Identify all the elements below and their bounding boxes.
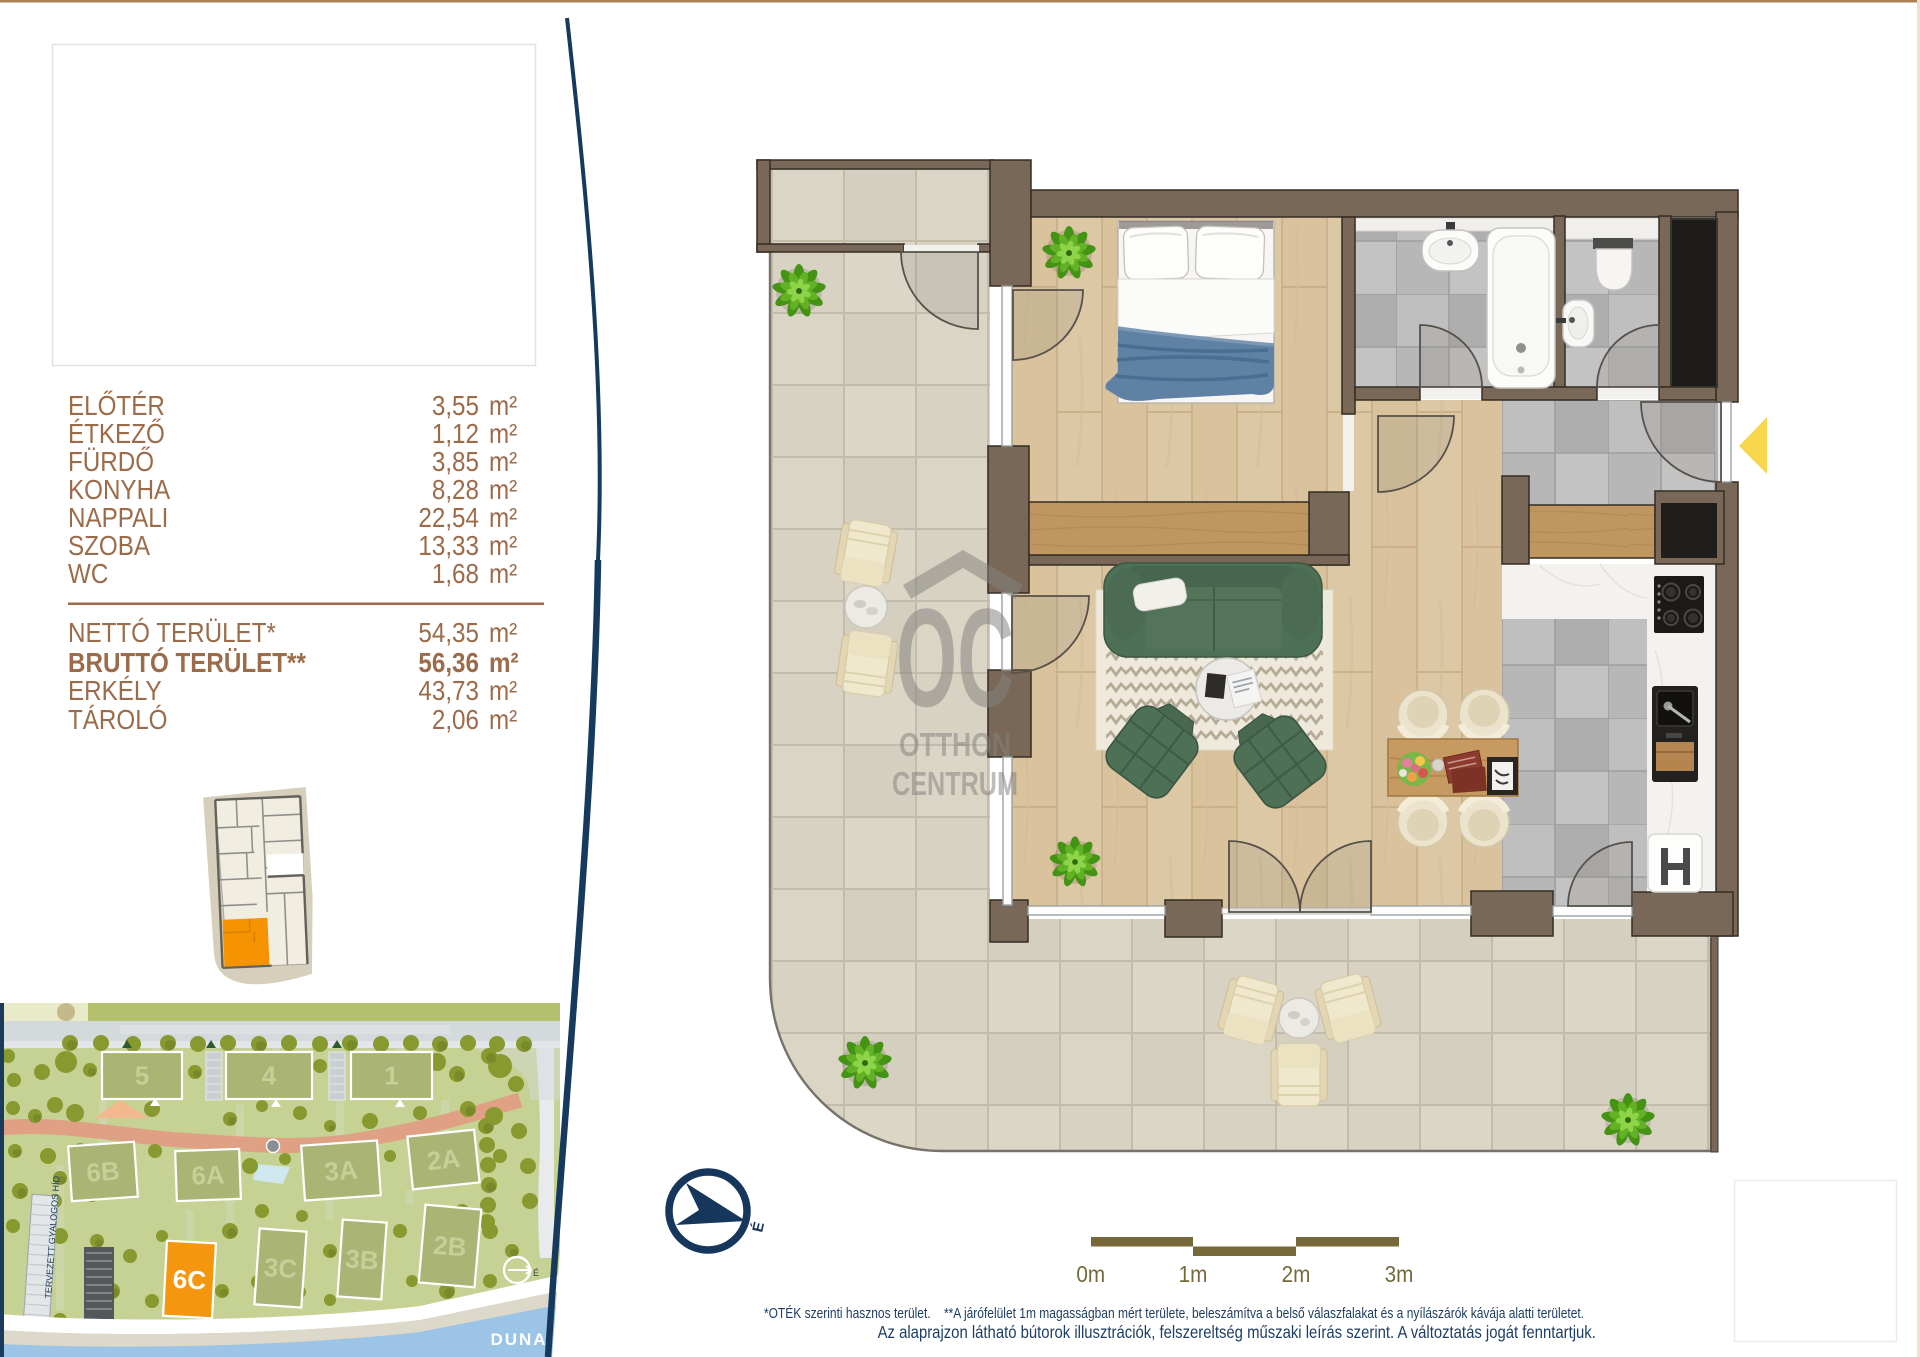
svg-text:OC: OC <box>896 579 1014 736</box>
svg-text:ERKÉLY: ERKÉLY <box>68 676 162 707</box>
svg-text:m²: m² <box>489 532 518 562</box>
svg-text:m²: m² <box>489 392 518 422</box>
svg-text:NETTÓ TERÜLET*: NETTÓ TERÜLET* <box>68 618 276 649</box>
svg-text:m²: m² <box>489 560 518 590</box>
svg-text:1,12: 1,12 <box>432 420 479 450</box>
svg-text:m²: m² <box>489 706 518 736</box>
svg-text:1: 1 <box>384 1061 398 1091</box>
svg-text:3,55: 3,55 <box>432 392 479 422</box>
svg-text:6C: 6C <box>172 1264 207 1296</box>
svg-text:4: 4 <box>262 1061 277 1091</box>
svg-text:WC: WC <box>68 560 108 590</box>
svg-text:3A: 3A <box>323 1154 358 1186</box>
svg-text:KONYHA: KONYHA <box>68 476 171 506</box>
svg-text:m²: m² <box>489 619 518 649</box>
svg-text:43,73: 43,73 <box>418 677 479 707</box>
svg-text:6B: 6B <box>85 1155 120 1187</box>
svg-text:m²: m² <box>489 448 518 478</box>
svg-text:É: É <box>749 1220 768 1234</box>
svg-text:m²: m² <box>489 476 518 506</box>
svg-text:0m: 0m <box>1076 1261 1105 1287</box>
svg-text:13,33: 13,33 <box>418 532 479 562</box>
svg-text:2B: 2B <box>432 1230 468 1263</box>
svg-text:8,28: 8,28 <box>432 476 479 506</box>
svg-text:Az alaprajzon látható bútorok: Az alaprajzon látható bútorok illusztrác… <box>878 1323 1596 1342</box>
svg-text:m²: m² <box>489 649 519 679</box>
svg-text:OTTHON: OTTHON <box>899 726 1011 763</box>
svg-text:m²: m² <box>489 420 518 450</box>
svg-text:2m: 2m <box>1282 1261 1311 1287</box>
svg-text:22,54: 22,54 <box>418 504 479 534</box>
svg-text:SZOBA: SZOBA <box>68 532 151 562</box>
svg-text:NAPPALI: NAPPALI <box>68 504 168 534</box>
svg-text:CENTRUM: CENTRUM <box>892 765 1018 802</box>
svg-text:ELŐTÉR: ELŐTÉR <box>68 391 165 422</box>
svg-text:2,06: 2,06 <box>432 706 479 736</box>
svg-text:1,68: 1,68 <box>432 560 479 590</box>
svg-text:FÜRDŐ: FÜRDŐ <box>68 447 154 478</box>
svg-text:6A: 6A <box>191 1160 225 1191</box>
svg-text:ÉTKEZŐ: ÉTKEZŐ <box>68 419 165 450</box>
svg-text:m²: m² <box>489 677 518 707</box>
svg-text:2A: 2A <box>425 1143 461 1176</box>
svg-text:3,85: 3,85 <box>432 448 479 478</box>
svg-text:5: 5 <box>135 1061 149 1091</box>
svg-text:DUNA: DUNA <box>490 1330 547 1349</box>
svg-text:TÁROLÓ: TÁROLÓ <box>68 705 167 736</box>
svg-text:3m: 3m <box>1385 1261 1414 1287</box>
svg-text:É: É <box>533 1268 539 1278</box>
svg-text:m²: m² <box>489 504 518 534</box>
svg-text:1m: 1m <box>1179 1261 1208 1287</box>
svg-text:BRUTTÓ TERÜLET**: BRUTTÓ TERÜLET** <box>68 647 307 679</box>
svg-text:56,36: 56,36 <box>418 649 479 679</box>
svg-text:3C: 3C <box>263 1252 298 1284</box>
svg-text:54,35: 54,35 <box>418 619 479 649</box>
svg-text:3B: 3B <box>344 1243 379 1275</box>
svg-text:*OTÉK szerinti hasznos terület: *OTÉK szerinti hasznos terület. **A járó… <box>764 1305 1584 1322</box>
